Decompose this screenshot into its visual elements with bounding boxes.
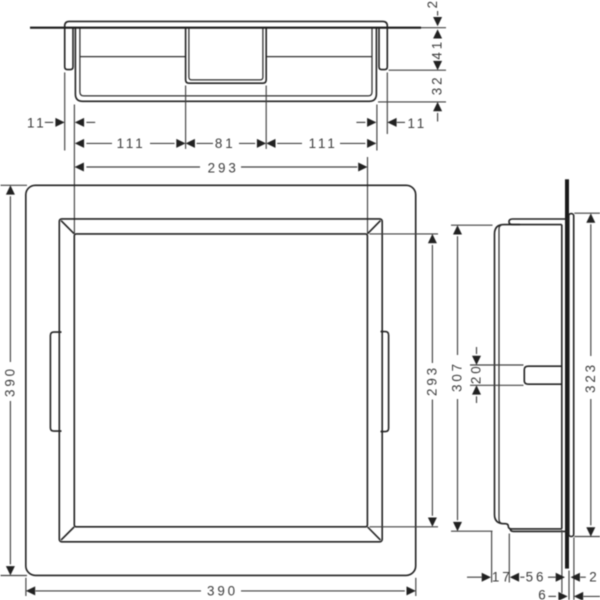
svg-text:17: 17	[492, 570, 513, 585]
svg-text:390: 390	[3, 366, 18, 397]
svg-text:11: 11	[27, 116, 47, 131]
svg-text:11: 11	[407, 116, 427, 131]
svg-text:56: 56	[526, 570, 547, 585]
svg-text:41: 41	[430, 39, 445, 60]
svg-text:323: 323	[583, 362, 598, 393]
svg-text:2: 2	[425, 0, 440, 8]
svg-text:81: 81	[215, 136, 236, 151]
svg-text:20: 20	[469, 363, 484, 384]
svg-text:111: 111	[117, 136, 146, 151]
svg-text:32: 32	[430, 75, 445, 96]
svg-text:293: 293	[425, 365, 440, 396]
svg-text:6: 6	[538, 588, 548, 600]
svg-text:111: 111	[309, 136, 338, 151]
svg-text:390: 390	[207, 584, 238, 599]
svg-text:307: 307	[450, 361, 465, 392]
svg-text:293: 293	[208, 160, 239, 175]
svg-text:2: 2	[589, 570, 599, 585]
